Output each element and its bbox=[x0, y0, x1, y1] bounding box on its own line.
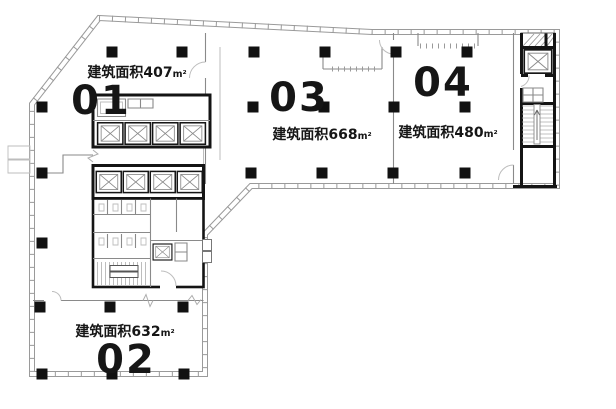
floor-plan-canvas: 建筑面积407m² 01 03 建筑面积668m² 04 建筑面积480m² 建… bbox=[0, 0, 616, 409]
core-washroom-block bbox=[93, 199, 204, 290]
service-stair-landing bbox=[110, 266, 138, 278]
wing-mullion-detail bbox=[203, 240, 212, 263]
unit-02-number: 02 bbox=[96, 337, 156, 383]
elevator-cell bbox=[177, 171, 202, 192]
door-opening bbox=[160, 284, 176, 290]
unit-03-area-label: 建筑面积668m² bbox=[272, 126, 371, 143]
service-elevator-cell bbox=[153, 244, 172, 260]
unit-04-number: 04 bbox=[413, 60, 473, 106]
shaft-room bbox=[521, 33, 555, 47]
core-lower-elevator-bank bbox=[93, 166, 204, 199]
elevator-cell bbox=[96, 171, 121, 192]
unit-03-number: 03 bbox=[269, 75, 329, 121]
unit-01-number: 01 bbox=[71, 78, 131, 124]
floor-plan-drawing: 建筑面积407m² 01 03 建筑面积668m² 04 建筑面积480m² 建… bbox=[0, 0, 616, 409]
elevator-cell bbox=[123, 171, 148, 192]
stair-lobby-room bbox=[523, 88, 543, 102]
unit-04-region bbox=[394, 33, 513, 186]
facade-ledge bbox=[8, 146, 30, 173]
unit-04-area-label: 建筑面积480m² bbox=[398, 124, 497, 141]
elevator-cell bbox=[150, 171, 175, 192]
right-stair-core bbox=[513, 33, 557, 187]
fire-elevator-cell bbox=[524, 50, 552, 73]
